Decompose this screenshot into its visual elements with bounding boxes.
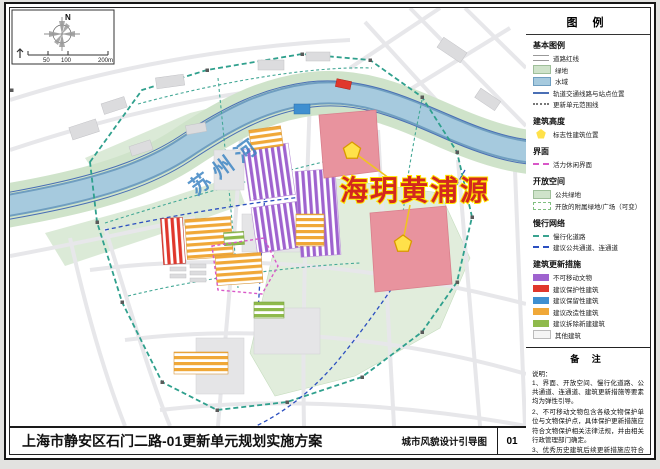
note-line: 3、优秀历史建筑后续更新措施应符合相关法律法规以及相应行政管理部门的相关要求。 <box>532 446 644 454</box>
title-bar: 上海市静安区石门二路-01更新单元规划实施方案 城市风貌设计引导图 01 <box>10 428 526 454</box>
legend-item: 更新单元范围线 <box>533 99 643 109</box>
legend-section-title: 慢行网络 <box>533 218 643 229</box>
plan-sheet: 苏州河 海玥黄浦源 N <box>4 2 656 460</box>
legend-item: 轨道交通线路与站点位置 <box>533 88 643 98</box>
legend-section-title: 建筑高度 <box>533 116 643 127</box>
legend-section-title: 建筑更新措施 <box>533 259 643 270</box>
legend-item: 开放的附属绿地/广场（可变） <box>533 201 643 211</box>
green-area-swatch <box>533 65 551 74</box>
notes-intro: 说明： <box>532 368 644 378</box>
legend-section-height: 建筑高度 标志性建筑位置 <box>533 116 643 139</box>
rebuild-building-swatch <box>533 320 549 327</box>
protect-building-swatch <box>533 285 549 292</box>
north-label: N <box>65 13 71 22</box>
legend-section-slownetwork: 慢行网络 慢行化道路 建议公共通道、连通道 <box>533 218 643 253</box>
legend-item: 慢行化道路 <box>533 231 643 241</box>
legend-section-title: 基本图例 <box>533 40 643 51</box>
legend-section-renewal: 建筑更新措施 不可移动文物 建议保护性建筑 建议保留性建筑 建议改造性建筑 <box>533 259 643 340</box>
legend-section-title: 界面 <box>533 146 643 157</box>
immovable-relic-swatch <box>533 274 549 281</box>
legend-section-openspace: 开放空间 公共绿地 开放的附属绿地/广场（可变） <box>533 176 643 211</box>
sheet-number: 01 <box>497 428 526 454</box>
legend-item: 建议保留性建筑 <box>533 295 643 305</box>
other-building-swatch <box>533 330 551 339</box>
scale-label-100: 100 <box>61 58 72 64</box>
open-green-swatch <box>533 202 551 210</box>
interface-line-swatch <box>533 163 549 165</box>
legend-item: 标志性建筑位置 <box>533 129 643 139</box>
renovate-building-swatch <box>533 308 549 315</box>
public-green-swatch <box>533 190 551 199</box>
legend-item: 不可移动文物 <box>533 272 643 282</box>
rail-line-swatch <box>533 92 549 94</box>
legend-section-interface: 界面 活力休闲界面 <box>533 146 643 169</box>
legend-item: 公共绿地 <box>533 189 643 199</box>
road-redline-swatch <box>533 55 549 61</box>
legend-item: 其他建筑 <box>533 330 643 340</box>
legend-title: 图 例 <box>526 8 650 35</box>
passage-swatch <box>533 246 549 248</box>
legend-section-title: 开放空间 <box>533 176 643 187</box>
retain-building-swatch <box>533 297 549 304</box>
legend-item: 道路红线 <box>533 53 643 63</box>
map-panel: 苏州河 海玥黄浦源 N <box>10 8 528 428</box>
legend-item: 建议改造性建筑 <box>533 307 643 317</box>
retained-building <box>294 104 310 114</box>
legend-item: 绿地 <box>533 65 643 75</box>
water-swatch <box>533 77 551 86</box>
drawing-name: 城市风貌设计引导图 <box>401 434 497 448</box>
scale-label-200m: 200m <box>98 58 113 64</box>
compass-scale-box: N 50 100 200m <box>12 10 114 64</box>
slow-road-swatch <box>533 235 549 237</box>
legend-item: 建议保护性建筑 <box>533 284 643 294</box>
scale-label-50: 50 <box>43 58 50 64</box>
legend-item: 建议公共通道、连通道 <box>533 242 643 252</box>
notes-box: 备 注 说明： 1、界面、开放空间、慢行化道路、公共通道、连通道、建筑更新措施等… <box>526 347 650 455</box>
legend-section-basic: 基本图例 道路红线 绿地 水域 轨道交通线路与站点位置 <box>533 40 643 109</box>
legend-body: 基本图例 道路红线 绿地 水域 轨道交通线路与站点位置 <box>526 35 650 347</box>
notes-title: 备 注 <box>532 352 644 365</box>
note-line: 1、界面、开放空间、慢行化道路、公共通道、连通道、建筑更新措施等要素均为弹性引导… <box>532 379 644 407</box>
project-watermark: 海玥黄浦源 <box>340 175 490 206</box>
landmark-star-swatch <box>536 129 546 139</box>
legend-item: 建议拆除新建建筑 <box>533 318 643 328</box>
sheet-inner-frame: 苏州河 海玥黄浦源 N <box>9 7 651 455</box>
note-line: 2、不可移动文物包含各级文物保护单位与文物保护点，具体保护更新措施应符合文物保护… <box>532 408 644 446</box>
unit-boundary-swatch <box>533 103 549 105</box>
legend-item: 活力休闲界面 <box>533 159 643 169</box>
legend-item: 水域 <box>533 76 643 86</box>
plan-map: 苏州河 海玥黄浦源 N <box>10 8 526 426</box>
sheet-title: 上海市静安区石门二路-01更新单元规划实施方案 <box>10 431 322 451</box>
legend-panel: 图 例 基本图例 道路红线 绿地 水域 轨道交通线路与站点 <box>526 8 650 454</box>
